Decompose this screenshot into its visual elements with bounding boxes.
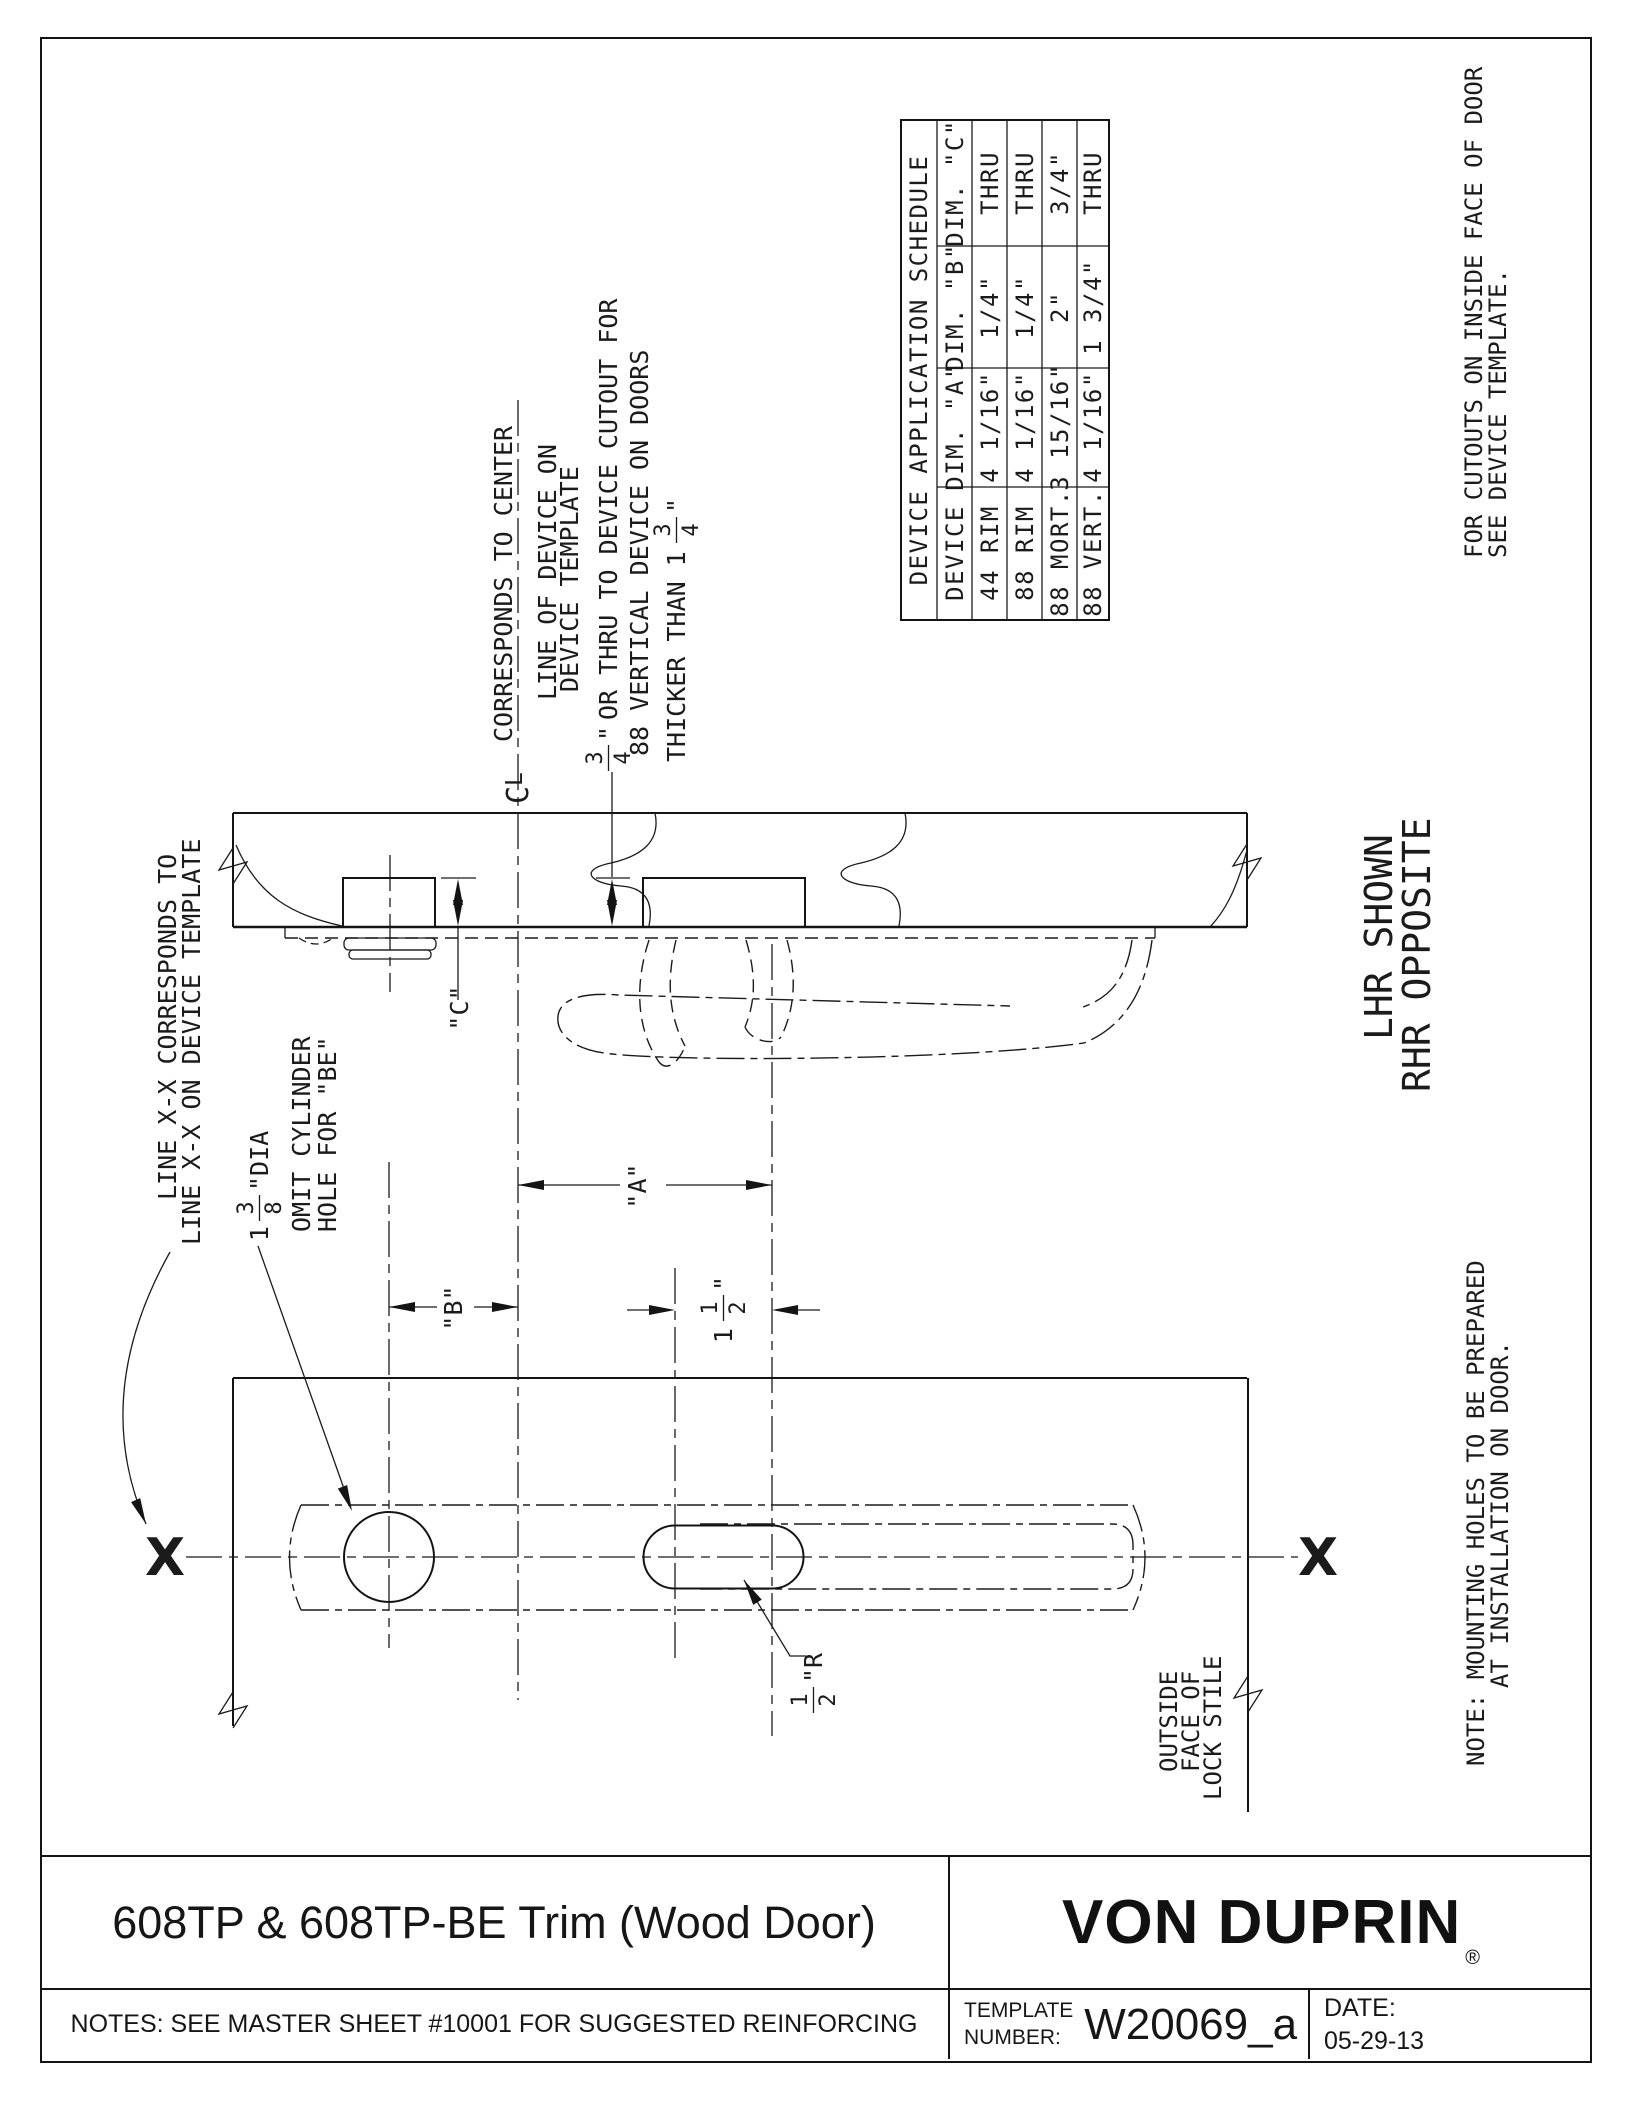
title-block-brand-cell: VON DUPRIN ® <box>948 1855 1592 1988</box>
wood-grain-curve <box>1210 850 1247 927</box>
svg-text:": " <box>594 726 623 741</box>
thumbpiece-arm-hidden <box>640 940 685 1066</box>
svg-text:1: 1 <box>245 1226 274 1241</box>
svg-text:3: 3 <box>651 523 676 536</box>
wood-grain-curve <box>236 845 342 926</box>
schedule-cell: 88 MORT. <box>1046 489 1074 617</box>
arrowhead <box>131 1498 151 1526</box>
schedule-cell: 4 1/16" <box>976 371 1004 483</box>
arrowhead <box>389 1302 415 1312</box>
dim-slot-label: 1 1 2 " <box>698 1276 751 1343</box>
svg-text:8: 8 <box>262 1201 287 1214</box>
x-mark-left: X <box>145 1528 185 1588</box>
svg-text:"DIA: "DIA <box>245 1131 274 1191</box>
schedule-cell: 4 1/16" <box>1079 371 1107 483</box>
schedule-header-device: DEVICE <box>941 505 969 601</box>
cylinder-note-line3: HOLE FOR "BE" <box>313 1036 342 1232</box>
svg-text:1: 1 <box>698 1301 723 1314</box>
registered-mark: ® <box>1465 1947 1480 1970</box>
drawing-area: X X "A" "B" <box>0 0 1632 2112</box>
dim-b-label: "B" <box>439 1285 468 1330</box>
handing-note-line2: RHR OPPOSITE <box>1395 817 1439 1092</box>
inside-face-note-line2: SEE DEVICE TEMPLATE. <box>1484 269 1512 558</box>
title-block-drawing-title-cell: 608TP & 608TP-BE Trim (Wood Door) <box>40 1855 948 1988</box>
centerline-symbol: C L <box>501 772 536 804</box>
schedule-cell: 3 15/16" <box>1046 363 1074 491</box>
schedule-cell: 3/4" <box>1046 151 1074 215</box>
arrowhead <box>740 1577 762 1604</box>
svg-text:2: 2 <box>726 1301 751 1314</box>
schedule-cell: THRU <box>1011 151 1039 215</box>
thumbpiece-cutout-section <box>643 878 805 927</box>
svg-text:1: 1 <box>788 1693 813 1706</box>
leaders <box>123 1246 357 1526</box>
date-value: 05-29-13 <box>1324 2025 1424 2058</box>
title-block-notes-cell: NOTES: SEE MASTER SHEET #10001 FOR SUGGE… <box>40 1988 948 2059</box>
cutout-note-line2: 88 VERTICAL DEVICE ON DOORS <box>625 350 654 756</box>
arrowhead <box>746 1180 772 1190</box>
arrowhead <box>649 1305 675 1315</box>
device-application-schedule: DEVICE APPLICATION SCHEDULE DEVICE DIM. … <box>901 119 1109 620</box>
svg-text:C: C <box>501 786 536 804</box>
stile-note-line3: LOCK STILE <box>1199 1656 1227 1801</box>
dim-c-label: "C" <box>445 985 474 1030</box>
arrowhead <box>518 1180 544 1190</box>
cylinder-note-line1: 1 3 8 "DIA <box>234 1131 287 1241</box>
schedule-header-a: DIM. "A" <box>941 363 969 491</box>
radius-label: 1 2 "R <box>788 1652 841 1713</box>
schedule-cell: 44 RIM <box>976 505 1004 601</box>
svg-text:THICKER THAN 1: THICKER THAN 1 <box>662 551 691 762</box>
wood-grain-curve <box>591 813 656 926</box>
schedule-cell: THRU <box>976 151 1004 215</box>
cylinder-note-line2: OMIT CYLINDER <box>287 1035 316 1232</box>
svg-text:4: 4 <box>679 523 704 536</box>
svg-text:": " <box>662 498 691 513</box>
x-mark-right: X <box>1298 1528 1338 1588</box>
title-block-date-cell: DATE: 05-29-13 <box>1308 1988 1592 2059</box>
dim-a-label: "A" <box>623 1163 652 1208</box>
svg-text:": " <box>709 1276 738 1291</box>
schedule-cell: 1/4" <box>976 275 1004 339</box>
arrowhead <box>772 1305 798 1315</box>
thumbpiece-arm-hidden <box>745 940 793 1042</box>
center-note-line3: DEVICE TEMPLATE <box>555 466 584 692</box>
wood-grain-curve <box>841 813 906 926</box>
master-sheet-note: NOTES: SEE MASTER SHEET #10001 FOR SUGGE… <box>71 2010 918 2039</box>
svg-text:"R: "R <box>799 1652 828 1683</box>
plate-end-hidden-arc <box>299 938 333 944</box>
schedule-cell: 4 1/16" <box>1011 371 1039 483</box>
arrowhead <box>492 1302 518 1312</box>
schedule-header-b: DIM. "B" <box>941 243 969 371</box>
schedule-header-c: DIM. "C" <box>941 119 969 247</box>
center-note-line1: CORRESPONDS TO CENTER <box>489 425 518 742</box>
line-xx-note2: LINE X-X ON DEVICE TEMPLATE <box>177 839 206 1245</box>
template-number-label: TEMPLATE NUMBER: <box>950 1998 1073 2051</box>
template-sheet: X X "A" "B" <box>0 0 1632 2112</box>
svg-text:OR THRU TO DEVICE CUTOUT FOR: OR THRU TO DEVICE CUTOUT FOR <box>594 298 623 720</box>
door-section-view <box>219 813 1261 1066</box>
schedule-cell: 1/4" <box>1011 275 1039 339</box>
cylinder-cutout-section <box>343 878 435 927</box>
svg-text:1: 1 <box>709 1328 738 1343</box>
date-block: DATE: 05-29-13 <box>1310 1992 1424 2057</box>
pull-grip-phantom-inner <box>1080 940 1132 1008</box>
template-number-value: W20069_a <box>1073 2000 1308 2050</box>
title-block-template-cell: TEMPLATE NUMBER: W20069_a <box>948 1988 1308 2059</box>
schedule-cell: 2" <box>1046 291 1074 323</box>
arrowhead <box>338 1485 357 1513</box>
drawing-title: 608TP & 608TP-BE Trim (Wood Door) <box>112 1897 876 1949</box>
schedule-cell: 1 3/4" <box>1079 259 1107 355</box>
svg-text:3: 3 <box>583 751 608 764</box>
schedule-cell: 88 VERT. <box>1079 489 1107 617</box>
svg-text:3: 3 <box>234 1201 259 1214</box>
dimensions: "A" "B" "C" 1 1 2 <box>389 772 841 1713</box>
arrowhead <box>607 900 617 926</box>
arrowhead <box>453 900 463 926</box>
pull-grip-phantom <box>558 940 1152 1059</box>
svg-text:L: L <box>502 772 528 786</box>
schedule-title: DEVICE APPLICATION SCHEDULE <box>905 155 933 586</box>
schedule-cell: THRU <box>1079 151 1107 215</box>
date-label: DATE: <box>1324 1992 1424 2025</box>
brand-logo: VON DUPRIN <box>1062 1887 1461 1958</box>
cutout-note-line3: THICKER THAN 1 3 4 " <box>651 498 704 762</box>
schedule-cell: 88 RIM <box>1011 505 1039 601</box>
line-xx-leader <box>123 1252 170 1524</box>
cylinder-note-leader <box>258 1246 348 1500</box>
svg-text:2: 2 <box>816 1693 841 1706</box>
mounting-note-line2: AT INSTALLATION ON DOOR. <box>1486 1341 1514 1688</box>
